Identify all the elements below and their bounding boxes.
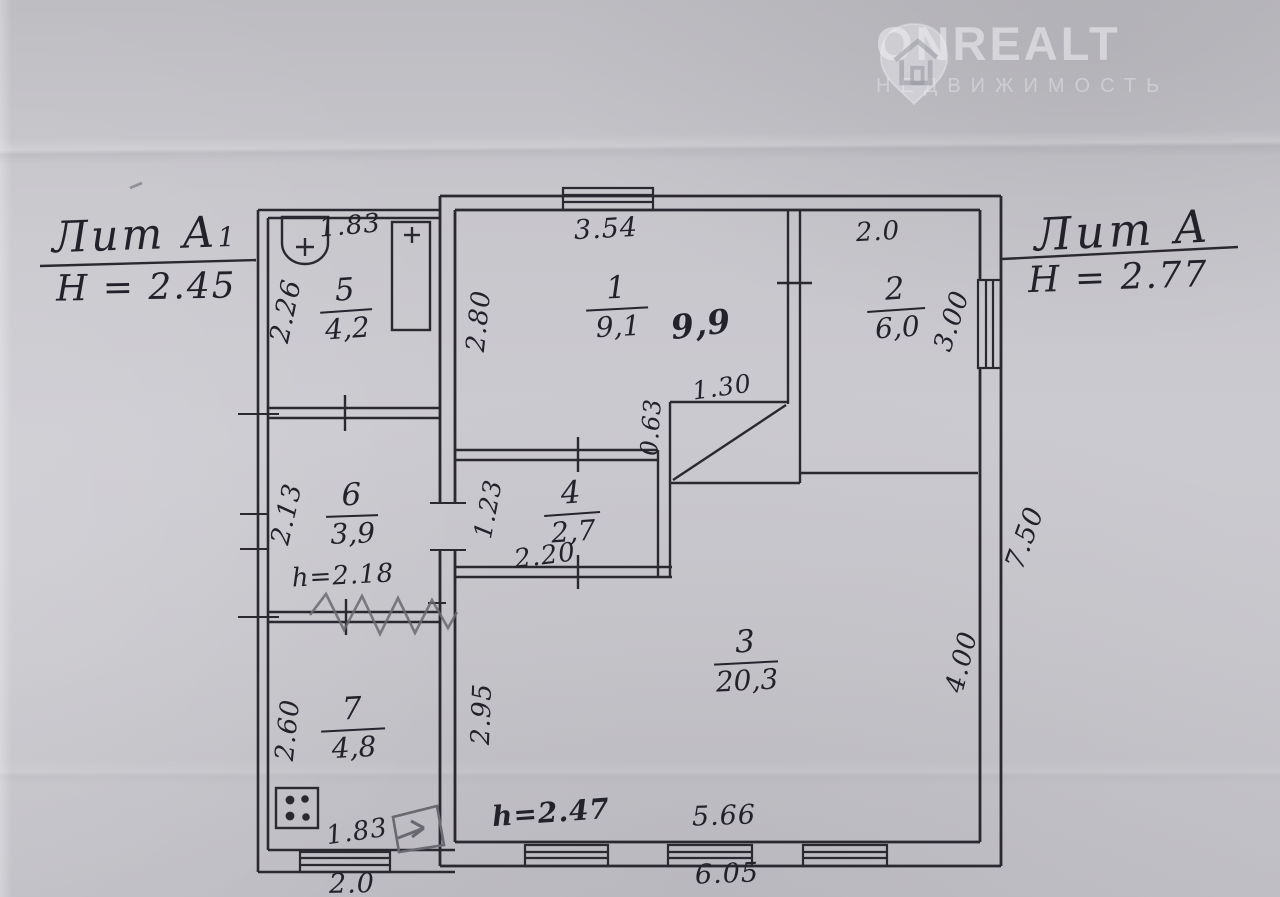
dim-left-room1: 2.80 bbox=[463, 289, 495, 353]
dim-left-room7: 2.60 bbox=[272, 698, 304, 762]
window-top bbox=[563, 188, 653, 210]
room-1-label: 19,1 bbox=[584, 271, 649, 342]
room-2-label: 26,0 bbox=[865, 272, 928, 344]
dim-bottom-main: 6.05 bbox=[694, 859, 759, 888]
room-area: 20,3 bbox=[714, 665, 779, 696]
room-5-label: 54,2 bbox=[318, 273, 375, 344]
area-correction-room1: 9,9 bbox=[669, 304, 733, 344]
dim-niche-width: 1.30 bbox=[691, 370, 754, 403]
room-3-label: 320,3 bbox=[712, 625, 779, 696]
dim-bottom-room3: 5.66 bbox=[691, 801, 756, 830]
dim-left-room3: 2.95 bbox=[468, 683, 496, 746]
dim-bottom-annex: 2.0 bbox=[329, 870, 375, 897]
room-7-label: 74,8 bbox=[319, 692, 386, 763]
room-area: 6,0 bbox=[867, 312, 927, 344]
room-number: 3 bbox=[712, 625, 778, 659]
room-number: 2 bbox=[865, 272, 925, 307]
room-area: 4,8 bbox=[321, 732, 386, 763]
note-height-room6: h=2.18 bbox=[291, 560, 395, 591]
window-bottom-3 bbox=[803, 845, 887, 866]
dim-bottom-room4: 2.20 bbox=[513, 539, 578, 572]
room-6-label: 63,9 bbox=[325, 479, 379, 549]
note-height-room3: h=2.47 bbox=[491, 795, 611, 831]
room-number: 7 bbox=[319, 692, 385, 726]
room-number: 5 bbox=[318, 273, 372, 308]
leader-lines bbox=[40, 247, 1238, 266]
room-area: 3,9 bbox=[326, 519, 379, 549]
room-area: 9,1 bbox=[586, 311, 649, 342]
window-bottom-1 bbox=[525, 845, 608, 866]
dim-niche-height: 0.63 bbox=[637, 398, 665, 457]
pencil-scribble bbox=[310, 594, 457, 634]
scanned-floor-plan: ONREALT НЕДВИЖИМОСТЬ Лит А1 H = 2.45 Лит… bbox=[0, 0, 1280, 897]
room-number: 4 bbox=[542, 476, 600, 511]
window-right bbox=[978, 280, 1001, 368]
dim-top-room2: 2.0 bbox=[855, 218, 901, 246]
stove-icon bbox=[276, 788, 318, 828]
room-number: 1 bbox=[584, 271, 648, 305]
dim-top-room5: 1.83 bbox=[318, 210, 382, 241]
room-number: 6 bbox=[325, 479, 378, 512]
dim-top-room1: 3.54 bbox=[573, 214, 638, 244]
room-area: 4,2 bbox=[320, 313, 374, 345]
